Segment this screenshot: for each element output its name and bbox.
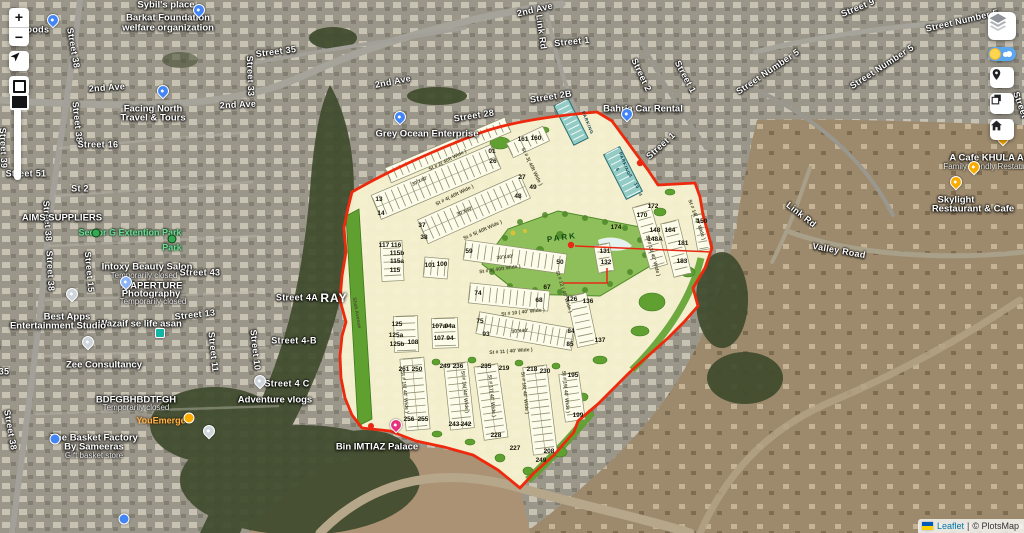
marker-button[interactable] bbox=[990, 67, 1014, 88]
map-pin-icon bbox=[990, 67, 1003, 82]
navigation-arrow-icon bbox=[9, 51, 21, 63]
layers-button[interactable] bbox=[988, 12, 1016, 40]
copy-icon bbox=[990, 93, 1003, 106]
map-canvas[interactable] bbox=[0, 0, 1024, 533]
park-icon-icon bbox=[168, 235, 177, 244]
zoom-slider[interactable] bbox=[14, 98, 21, 180]
business-pin-icon bbox=[184, 413, 195, 424]
home-icon bbox=[990, 119, 1003, 132]
locate-button[interactable] bbox=[9, 51, 29, 71]
attribution-bar: Leaflet | © PlotsMap bbox=[918, 519, 1024, 533]
map-viewport[interactable]: FoodsSybil's placeBarkat Foundationwelfa… bbox=[0, 0, 1024, 533]
zoom-out-button[interactable]: − bbox=[9, 27, 29, 47]
attribution-separator: | bbox=[967, 521, 969, 531]
service-pin-icon bbox=[155, 328, 165, 338]
zoom-in-button[interactable]: + bbox=[9, 8, 29, 27]
layers-icon bbox=[988, 12, 1008, 32]
copy-layers-button[interactable] bbox=[990, 93, 1014, 114]
cloud-icon bbox=[1003, 51, 1013, 57]
leaflet-attribution-link[interactable]: Leaflet bbox=[937, 521, 964, 531]
ukraine-flag-icon bbox=[922, 522, 933, 530]
place-dot-pin-icon bbox=[50, 434, 61, 445]
zoom-control[interactable]: + − bbox=[9, 8, 29, 46]
home-button[interactable] bbox=[990, 119, 1014, 140]
sun-icon bbox=[989, 48, 1001, 60]
day-night-toggle[interactable] bbox=[988, 47, 1016, 61]
rectangle-icon bbox=[13, 80, 26, 93]
park-icon-icon bbox=[92, 229, 101, 238]
draw-rectangle-button[interactable] bbox=[9, 76, 29, 96]
zoom-slider-handle[interactable] bbox=[10, 94, 29, 110]
attribution-provider: © PlotsMap bbox=[972, 521, 1019, 531]
place-dot-pin-icon bbox=[119, 514, 130, 525]
